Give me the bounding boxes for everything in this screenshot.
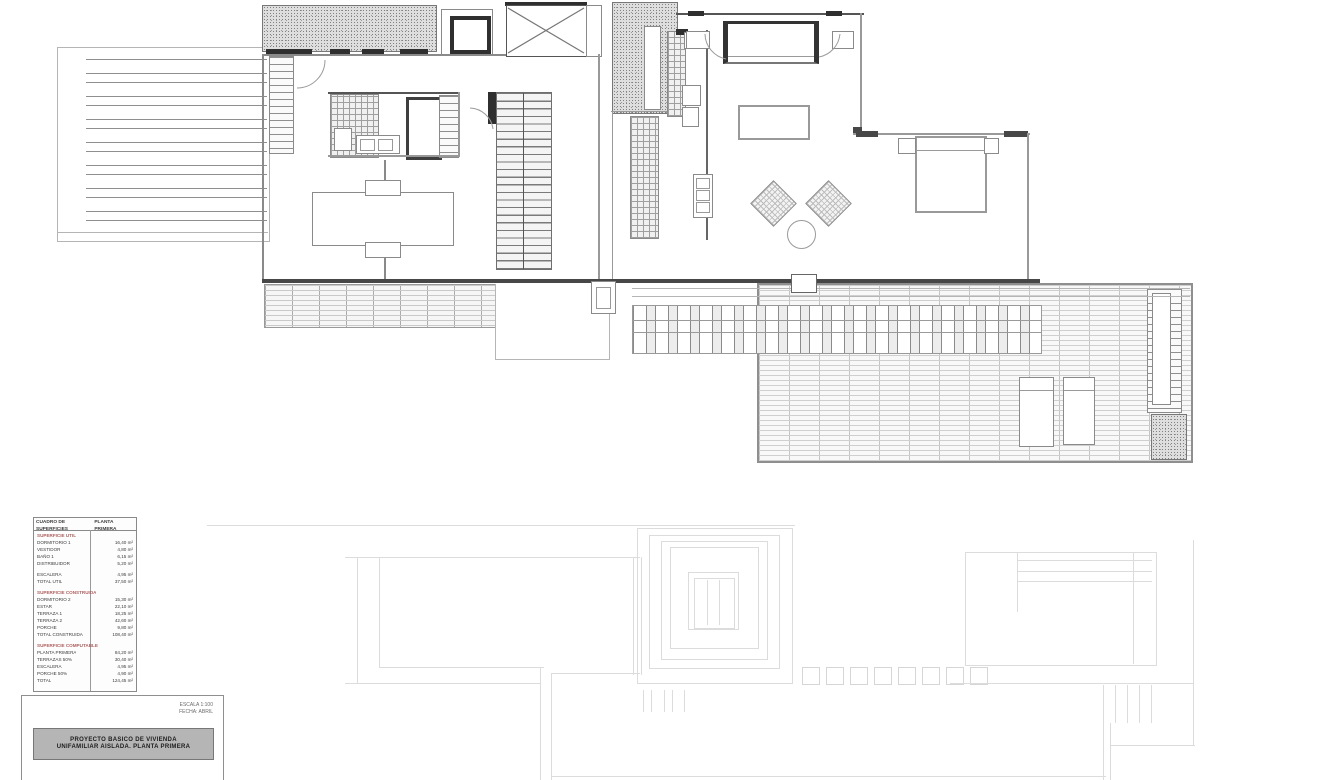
legend-row-value: 4,90 m² <box>103 670 133 677</box>
title-banner-line2: UNIFAMILIAR AISLADA. PLANTA PRIMERA <box>57 744 191 752</box>
legend-row-label: ESCALERA <box>37 663 62 670</box>
legend-row: BAÑO 1 6,15 m² <box>37 553 133 560</box>
legend-row: PORCHE 9,80 m² <box>37 624 133 631</box>
legend-row-label: DORMITORIO 2 <box>37 596 71 603</box>
legend-row-value: 42,60 m² <box>103 617 133 624</box>
legend-row-label: TERRAZA 2 <box>37 617 62 624</box>
legend-row-value <box>103 589 133 596</box>
legend-row-value: 6,15 m² <box>103 553 133 560</box>
legend-row-value: 9,80 m² <box>103 624 133 631</box>
legend-row-label: SUPERFICIE UTIL <box>37 532 76 539</box>
legend-row-value: 37,50 m² <box>103 578 133 585</box>
areas-legend-table: CUADRO DE SUPERFICIES PLANTA PRIMERA SUP… <box>33 517 137 692</box>
legend-row: SUPERFICIE COMPUTABLE <box>37 642 133 649</box>
legend-row: DORMITORIO 2 15,30 m² <box>37 596 133 603</box>
legend-row-value: 18,25 m² <box>103 610 133 617</box>
title-banner: PROYECTO BASICO DE VIVIENDA UNIFAMILIAR … <box>33 728 214 760</box>
legend-row-value: 15,30 m² <box>103 596 133 603</box>
legend-row-value: 124,45 m² <box>103 677 133 684</box>
legend-row-value: 108,40 m² <box>103 631 133 638</box>
legend-header: CUADRO DE SUPERFICIES PLANTA PRIMERA <box>36 519 134 529</box>
legend-row-value <box>103 642 133 649</box>
legend-row: DISTRIBUIDOR 5,20 m² <box>37 560 133 567</box>
title-block: ESCALA 1:100 FECHA: ABRIL PROYECTO BASIC… <box>21 695 224 780</box>
legend-row-value: 30,40 m² <box>103 656 133 663</box>
legend-row-label: DORMITORIO 1 <box>37 539 71 546</box>
legend-row-value: 4,95 m² <box>103 571 133 578</box>
legend-row: TERRAZA 2 42,60 m² <box>37 617 133 624</box>
title-note-line2: FECHA: ABRIL <box>179 709 213 716</box>
legend-row-label: TERRAZA 1 <box>37 610 62 617</box>
legend-row-label: ESCALERA <box>37 571 62 578</box>
legend-row: VESTIDOR 4,80 m² <box>37 546 133 553</box>
legend-header-left: CUADRO DE SUPERFICIES <box>36 519 94 529</box>
legend-row: PLANTA PRIMERA 84,20 m² <box>37 649 133 656</box>
legend-row: TOTAL 124,45 m² <box>37 677 133 684</box>
legend-row: TOTAL UTIL 37,50 m² <box>37 578 133 585</box>
legend-rows: SUPERFICIE UTIL DORMITORIO 1 16,40 m² VE… <box>37 532 133 684</box>
legend-row: SUPERFICIE CONSTRUIDA <box>37 589 133 596</box>
legend-row: ESCALERA 4,95 m² <box>37 571 133 578</box>
legend-row: SUPERFICIE UTIL <box>37 532 133 539</box>
legend-header-line <box>34 530 136 531</box>
legend-row-label: ESTAR <box>37 603 52 610</box>
legend-row: ESTAR 22,10 m² <box>37 603 133 610</box>
title-banner-line1: PROYECTO BASICO DE VIVIENDA <box>70 737 177 745</box>
title-note-line1: ESCALA 1:100 <box>179 702 213 709</box>
legend-row: PORCHE 50% 4,90 m² <box>37 670 133 677</box>
legend-row: DORMITORIO 1 16,40 m² <box>37 539 133 546</box>
legend-row-label: TERRAZAS 50% <box>37 656 72 663</box>
legend-row-label: PORCHE 50% <box>37 670 67 677</box>
legend-header-right: PLANTA PRIMERA <box>94 519 134 529</box>
legend-row: ESCALERA 4,95 m² <box>37 663 133 670</box>
legend-row-label: PORCHE <box>37 624 57 631</box>
door-arcs-overlay <box>0 0 1324 780</box>
legend-row: TERRAZAS 50% 30,40 m² <box>37 656 133 663</box>
legend-row-label: DISTRIBUIDOR <box>37 560 70 567</box>
legend-row-label: BAÑO 1 <box>37 553 54 560</box>
legend-row-value: 84,20 m² <box>103 649 133 656</box>
title-block-notes: ESCALA 1:100 FECHA: ABRIL <box>179 702 213 715</box>
legend-row-value: 4,95 m² <box>103 663 133 670</box>
legend-row-label: TOTAL CONSTRUIDA <box>37 631 83 638</box>
floor-plan-canvas: CUADRO DE SUPERFICIES PLANTA PRIMERA SUP… <box>0 0 1324 780</box>
legend-row-label: VESTIDOR <box>37 546 60 553</box>
legend-row-label: TOTAL <box>37 677 51 684</box>
legend-row-value: 5,20 m² <box>103 560 133 567</box>
legend-row-label: SUPERFICIE CONSTRUIDA <box>37 589 96 596</box>
legend-row: TOTAL CONSTRUIDA 108,40 m² <box>37 631 133 638</box>
legend-row-label: SUPERFICIE COMPUTABLE <box>37 642 98 649</box>
legend-row-value: 4,80 m² <box>103 546 133 553</box>
legend-row-value: 22,10 m² <box>103 603 133 610</box>
legend-row-label: PLANTA PRIMERA <box>37 649 76 656</box>
legend-row-value <box>103 532 133 539</box>
legend-row: TERRAZA 1 18,25 m² <box>37 610 133 617</box>
legend-row-label: TOTAL UTIL <box>37 578 62 585</box>
legend-row-value: 16,40 m² <box>103 539 133 546</box>
